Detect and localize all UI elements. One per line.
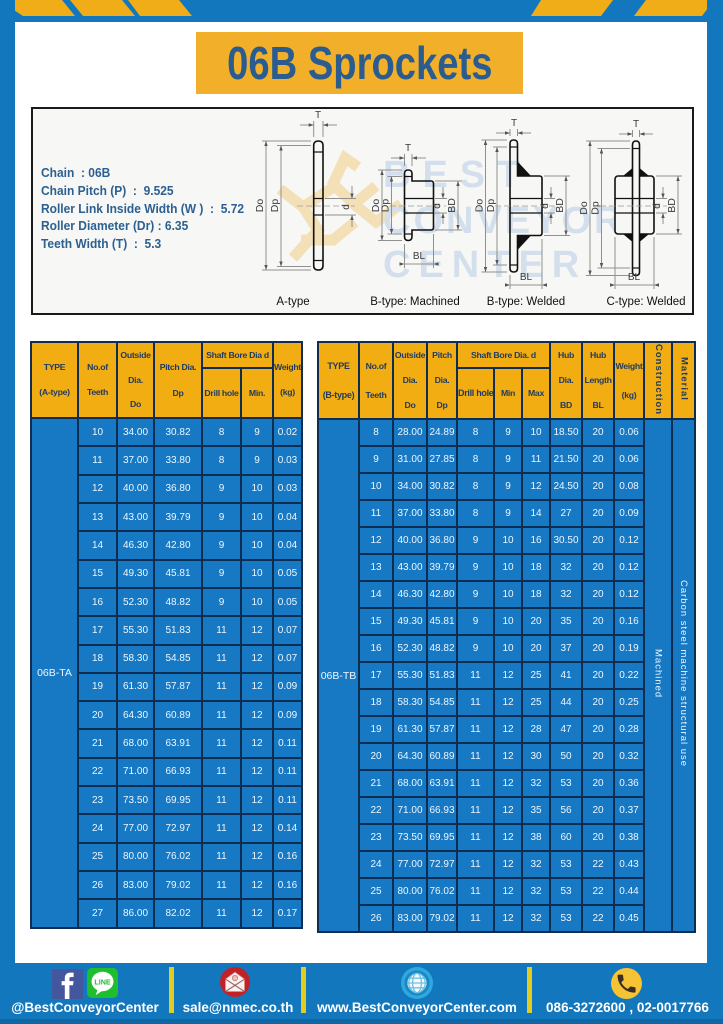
svg-text:Do: Do xyxy=(254,199,266,213)
svg-text:BL: BL xyxy=(628,272,641,283)
svg-text:Dp: Dp xyxy=(590,201,602,215)
svg-text:@: @ xyxy=(232,976,238,982)
svg-text:d: d xyxy=(540,203,551,209)
svg-text:d: d xyxy=(341,204,352,210)
svg-text:Dp: Dp xyxy=(380,199,392,213)
svg-text:BL: BL xyxy=(520,272,533,283)
svg-text:Dp: Dp xyxy=(269,199,281,213)
svg-text:LINE: LINE xyxy=(94,977,111,986)
svg-text:Dp: Dp xyxy=(485,199,497,213)
svg-text:Do: Do xyxy=(578,201,590,215)
svg-text:BD: BD xyxy=(666,198,678,213)
svg-text:BD: BD xyxy=(446,198,458,213)
svg-text:B-type: Welded: B-type: Welded xyxy=(487,296,565,308)
svg-text:BL: BL xyxy=(413,251,426,262)
svg-text:Do: Do xyxy=(474,199,486,213)
svg-text:A-type: A-type xyxy=(276,296,309,308)
svg-text:B-type: Machined: B-type: Machined xyxy=(370,296,460,308)
svg-text:C-type: Welded: C-type: Welded xyxy=(606,296,685,308)
svg-text:BD: BD xyxy=(554,198,566,213)
svg-text:T: T xyxy=(405,143,411,154)
svg-text:T: T xyxy=(315,110,321,121)
svg-text:d: d xyxy=(432,203,443,209)
svg-text:T: T xyxy=(633,119,639,130)
svg-text:T: T xyxy=(511,118,517,129)
svg-text:d: d xyxy=(652,203,663,209)
